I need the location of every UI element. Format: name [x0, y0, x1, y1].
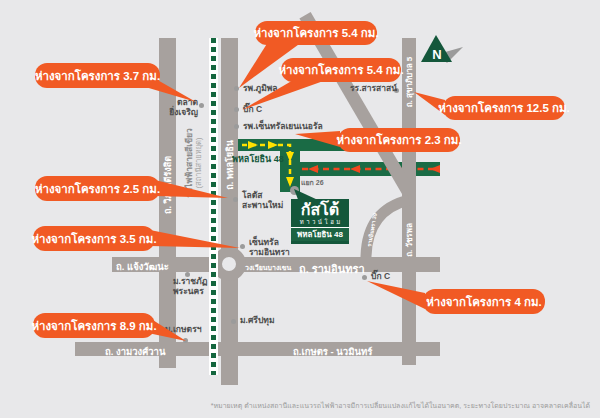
distance-callout-5-4km-b: ห่างจากโครงการ 5.4 กม. [281, 58, 401, 82]
road-label-ramindra39: รามอินทรา 39 [366, 213, 378, 248]
distance-callout-2-3km: ห่างจากโครงการ 2.3 กม. [338, 128, 460, 152]
road-label-kaset-nawamin: ถ.เกษตร - นวมินทร์ [293, 344, 372, 359]
compass-north-icon [421, 35, 452, 62]
junction-26-label: แยก 26 [301, 177, 324, 188]
road-label-soi48: พหลโยธิน 48 [232, 152, 284, 166]
road-label-chaengwattana: ถ. แจ้งวัฒนะ [116, 259, 169, 274]
compass-swoosh [438, 47, 463, 63]
landmark-dot-lotus [233, 197, 238, 202]
distance-callout-8-9km: ห่างจากโครงการ 8.9 กม. [33, 313, 155, 338]
landmark-bigc-ramindra: บิ๊ก C [371, 272, 390, 282]
distance-callout-3-5km: ห่างจากโครงการ 3.5 กม. [33, 226, 155, 251]
road-label-ngamwongwan: ถ. งามวงศ์วาน [105, 344, 165, 359]
distance-callout-5-4km-a: ห่างจากโครงการ 5.4 กม. [255, 21, 377, 45]
road-label-viphavadi: ถ. วิภาวดีรังสิต [161, 156, 175, 214]
landmark-sripatum-university: ม.ศรีปทุม [240, 316, 275, 326]
railway-dashes [211, 38, 216, 375]
project-logo: กัสโต้ ทาวน์โฮม พหลโยธิน 48 [291, 199, 349, 244]
landmark-talad-yingcharoen: ตลาด ยิ่งเจริญ [162, 98, 198, 117]
landmark-rajabhat-phranakhon: ม.ราชภัฏ พระนคร [173, 277, 207, 296]
project-location-dot [290, 186, 299, 195]
landmark-dot-central-ramindra [240, 244, 245, 249]
railway-station-note: (สถานีสายหยุด) [194, 128, 203, 197]
location-map: รามอินทรา 39 ถ. วิภาวดีรังสิต ถ. พหลโยธิ… [0, 0, 600, 418]
green-line-railway [209, 38, 218, 375]
railway-label: รถไฟฟ้าสายสีเขียว (สถานีสายหยุด) [185, 128, 203, 197]
landmark-dot-talad-yingcharoen [199, 103, 204, 108]
landmark-dot-sripatum [231, 319, 236, 324]
soi48-road-lower [280, 162, 440, 176]
road-label-watcharaphon: ถ. วัชรพล [403, 223, 416, 257]
landmark-kasetsart-university: ม.เกษตรฯ [165, 325, 201, 335]
railway-line-name: รถไฟฟ้าสายสีเขียว [184, 128, 194, 197]
road-label-bangkhen-roundabout: วงเวียนบางเขน [245, 262, 291, 273]
landmark-dot-bigc-ramindra [362, 275, 367, 280]
landmark-dot-central-general [234, 124, 239, 129]
project-location: พหลโยธิน 48 [291, 227, 349, 241]
compass-n-label: N [432, 47, 441, 62]
road-label-sukhaphiban5: ถ. สุขาภิบาล 5 [403, 57, 416, 108]
road-label-ramindra: ถ. รามอินทรา [299, 260, 365, 278]
distance-callout-3-7km: ห่างจากโครงการ 3.7 กม. [35, 63, 160, 88]
distance-callout-2-5km: ห่างจากโครงการ 2.5 กม. [35, 176, 160, 201]
landmark-dot-bhumibol [234, 86, 239, 91]
distance-callout-12-5km: ห่างจากโครงการ 12.5 กม. [443, 96, 565, 120]
landmark-central-ramindra: เซ็นทรัล รามอินทรา [249, 238, 290, 257]
callout-tail [367, 281, 425, 309]
landmark-bigc-saphanmai: บิ๊ก C [243, 105, 262, 115]
landmark-lotus-saphanmai: โลตัส สะพานใหม่ [242, 191, 283, 210]
landmark-bhumibol-hospital: รพ.ภูมิพล [243, 84, 278, 94]
map-footnote: *หมายเหตุ ตำแหน่งสถานีและแนวรถไฟฟ้าอาจมี… [211, 400, 590, 411]
landmark-sarasas-school: รร.สารสาสน์ [350, 84, 397, 94]
landmark-central-general-hospital: รพ.เซ็นทรัลเยนเนอรัล [243, 122, 323, 132]
distance-callout-4km: ห่างจากโครงการ 4 กม. [423, 289, 545, 314]
landmark-dot-kasetsart [183, 338, 188, 343]
project-type: ทาวน์โฮม [291, 218, 349, 226]
project-name: กัสโต้ [291, 201, 349, 218]
landmark-dot-bigc-saphanmai [234, 107, 239, 112]
